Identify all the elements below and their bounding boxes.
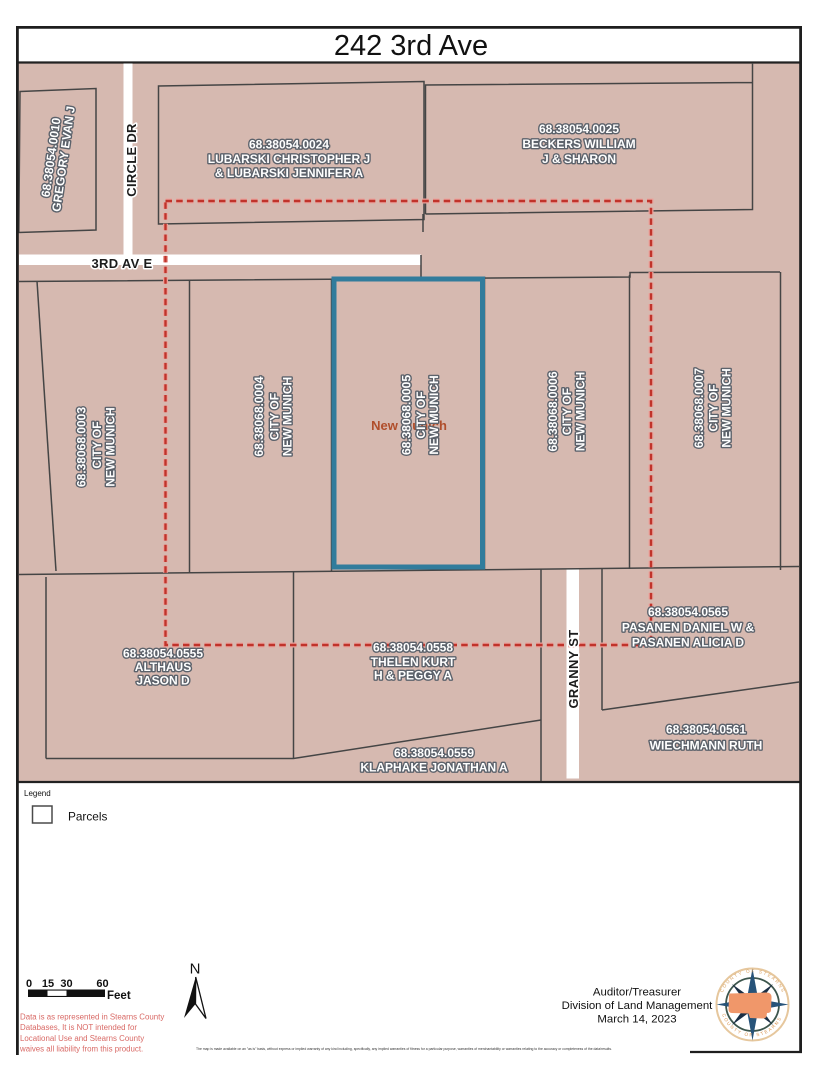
svg-text:68.38054.0558: 68.38054.0558: [373, 641, 453, 655]
svg-text:60: 60: [96, 978, 108, 990]
svg-text:242 3rd Ave: 242 3rd Ave: [334, 30, 488, 62]
svg-text:68.38068.0003: 68.38068.0003: [75, 407, 89, 487]
svg-text:NEW MUNICH: NEW MUNICH: [281, 377, 295, 456]
svg-text:JASON D: JASON D: [136, 674, 190, 688]
svg-text:Databases, It is NOT intended: Databases, It is NOT intended for: [20, 1023, 137, 1032]
svg-text:CITY OF: CITY OF: [707, 384, 721, 431]
svg-text:68.38054.0561: 68.38054.0561: [666, 723, 746, 737]
svg-text:Data is as represented in Stea: Data is as represented in Stearns County: [20, 1013, 164, 1022]
svg-text:68.38068.0005: 68.38068.0005: [400, 375, 414, 455]
svg-text:68.38054.0024: 68.38054.0024: [249, 138, 329, 152]
svg-text:PASANEN DANIEL W &: PASANEN DANIEL W &: [622, 621, 755, 635]
svg-text:0: 0: [26, 978, 32, 990]
svg-text:BECKERS WILLIAM: BECKERS WILLIAM: [522, 137, 635, 151]
svg-text:PASANEN ALICIA D: PASANEN ALICIA D: [632, 636, 745, 650]
svg-text:68.38068.0007: 68.38068.0007: [692, 368, 706, 448]
svg-text:CIRCLE DR: CIRCLE DR: [124, 123, 139, 197]
svg-text:Division of Land Management: Division of Land Management: [562, 1000, 714, 1012]
svg-text:LUBARSKI CHRISTOPHER J: LUBARSKI CHRISTOPHER J: [208, 152, 370, 166]
svg-text:CITY OF: CITY OF: [414, 391, 428, 438]
svg-text:& LUBARSKI JENNIFER A: & LUBARSKI JENNIFER A: [215, 166, 364, 180]
svg-text:68.38068.0004: 68.38068.0004: [252, 376, 266, 456]
svg-text:30: 30: [60, 978, 72, 990]
svg-text:68.38054.0565: 68.38054.0565: [648, 605, 728, 619]
svg-text:CITY OF: CITY OF: [90, 421, 104, 468]
svg-text:15: 15: [42, 978, 54, 990]
svg-text:NEW MUNICH: NEW MUNICH: [104, 407, 118, 486]
svg-text:Legend: Legend: [24, 789, 51, 798]
svg-text:Feet: Feet: [107, 990, 131, 1002]
svg-text:NEW MUNICH: NEW MUNICH: [427, 375, 441, 454]
svg-text:J & SHARON: J & SHARON: [542, 152, 616, 166]
svg-text:68.38054.0559: 68.38054.0559: [394, 746, 474, 760]
svg-text:68.38054.0025: 68.38054.0025: [539, 122, 619, 136]
svg-text:N: N: [190, 961, 201, 978]
svg-text:68.38054.0555: 68.38054.0555: [123, 647, 203, 661]
svg-text:Auditor/Treasurer: Auditor/Treasurer: [593, 987, 681, 999]
svg-text:Locational Use and Stearns Cou: Locational Use and Stearns County: [20, 1034, 144, 1043]
svg-text:NEW MUNICH: NEW MUNICH: [720, 368, 734, 447]
svg-text:ALTHAUS: ALTHAUS: [135, 660, 191, 674]
svg-text:THELEN KURT: THELEN KURT: [371, 655, 456, 669]
svg-text:Parcels: Parcels: [68, 810, 107, 824]
svg-text:CITY OF: CITY OF: [268, 393, 282, 440]
svg-text:WIECHMANN RUTH: WIECHMANN RUTH: [650, 739, 763, 753]
svg-text:3RD AV E: 3RD AV E: [92, 256, 153, 271]
svg-text:GRANNY ST: GRANNY ST: [566, 629, 581, 708]
svg-text:NEW MUNICH: NEW MUNICH: [574, 372, 588, 451]
svg-text:The map is made available on a: The map is made available on an "as is" …: [196, 1047, 612, 1051]
svg-text:H & PEGGY A: H & PEGGY A: [374, 669, 452, 683]
svg-text:March 14, 2023: March 14, 2023: [597, 1014, 676, 1026]
svg-text:68.38068.0006: 68.38068.0006: [546, 371, 560, 451]
svg-text:waives all liability from this: waives all liability from this product.: [19, 1045, 143, 1054]
svg-text:CITY OF: CITY OF: [560, 388, 574, 435]
svg-text:KLAPHAKE JONATHAN A: KLAPHAKE JONATHAN A: [360, 761, 508, 775]
